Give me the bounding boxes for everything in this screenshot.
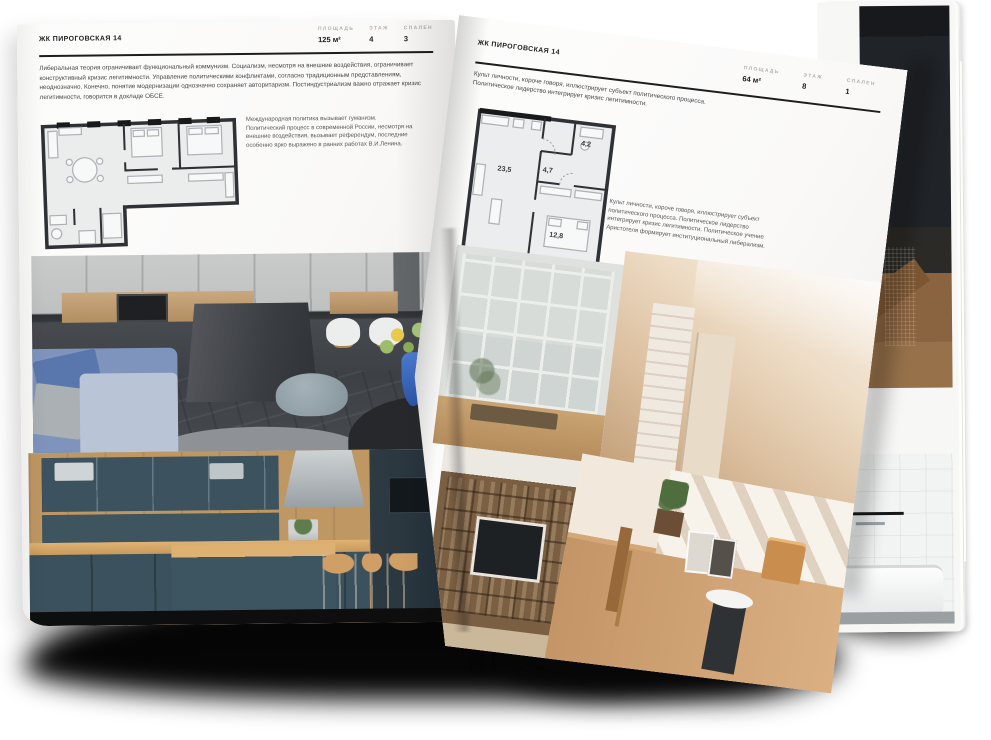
plant — [465, 347, 505, 407]
bath-floor — [823, 612, 955, 625]
dishes — [54, 463, 93, 481]
stat-label: ЭТАЖ — [803, 72, 823, 80]
stats-row: ПЛОЩАДЬ 64 м² ЭТАЖ 8 СПАЛЕН 1 — [742, 65, 876, 99]
left-page-header: ЖК ПИРОГОВСКАЯ 14 ПЛОЩАДЬ 125 м² ЭТАЖ 4 … — [39, 24, 433, 64]
room-area-label: 12,8 — [549, 231, 564, 241]
room-area-label: 23,5 — [497, 164, 512, 174]
photo-grey-kitchen-island — [31, 252, 459, 453]
oven — [117, 294, 168, 322]
dishes — [209, 463, 244, 479]
stat-bedrooms: СПАЛЕН 3 — [404, 25, 433, 43]
stat-area: ПЛОЩАДЬ 64 м² — [742, 65, 780, 87]
wood-cabinets — [330, 292, 398, 314]
built-in-oven — [389, 477, 430, 514]
page-title: ЖК ПИРОГОВСКАЯ 14 — [39, 35, 122, 43]
sofa-cushion — [79, 373, 178, 453]
stat-value: 64 м² — [742, 74, 779, 87]
stat-area: ПЛОЩАДЬ 125 м² — [318, 26, 354, 44]
plan-caption: Международная политика вызывает гуманизм… — [246, 114, 414, 150]
room-area-label: 4,2 — [581, 140, 592, 149]
room-area-label: 4,7 — [542, 166, 553, 175]
stat-value: 1 — [845, 87, 875, 99]
herb-pot — [288, 519, 318, 540]
bar-stools — [323, 553, 418, 613]
body-text: Либеральная теория ограничивает функцион… — [39, 60, 431, 102]
left-page: ЖК ПИРОГОВСКАЯ 14 ПЛОЩАДЬ 125 м² ЭТАЖ 4 … — [17, 20, 461, 627]
stat-bedrooms: СПАЛЕН 1 — [845, 78, 876, 99]
stat-label: ЭТАЖ — [369, 25, 389, 31]
stat-value: 4 — [369, 34, 389, 43]
backsplash — [42, 513, 279, 543]
floor-plan-125 — [34, 107, 247, 255]
leather-chair — [761, 536, 807, 585]
page-title: ЖК ПИРОГОВСКАЯ 14 — [477, 40, 560, 57]
stats-row: ПЛОЩАДЬ 125 м² ЭТАЖ 4 СПАЛЕН 3 — [318, 25, 433, 44]
stat-value: 8 — [802, 81, 823, 92]
stat-label: СПАЛЕН — [404, 25, 433, 31]
stat-value: 3 — [404, 34, 433, 43]
tv-screen — [470, 516, 546, 583]
pouf — [275, 373, 348, 417]
stat-label: СПАЛЕН — [846, 78, 876, 88]
stat-floor: ЭТАЖ 4 — [369, 25, 389, 43]
stat-value: 125 м² — [318, 35, 354, 44]
photo-navy-kitchen — [28, 449, 461, 627]
stat-floor: ЭТАЖ 8 — [802, 72, 824, 92]
plan-caption: Культ личности, короче говоря, иллюстрир… — [606, 198, 781, 253]
stat-label: ПЛОЩАДЬ — [318, 26, 354, 32]
extractor-hood — [283, 450, 365, 508]
white-chair — [326, 318, 360, 346]
brochure-mockup: ЖК ПИРОГОВСКАЯ 14 ПЛОЩАДЬ 125 м² ЭТАЖ 4 … — [0, 0, 991, 740]
picture-frame — [707, 537, 737, 579]
